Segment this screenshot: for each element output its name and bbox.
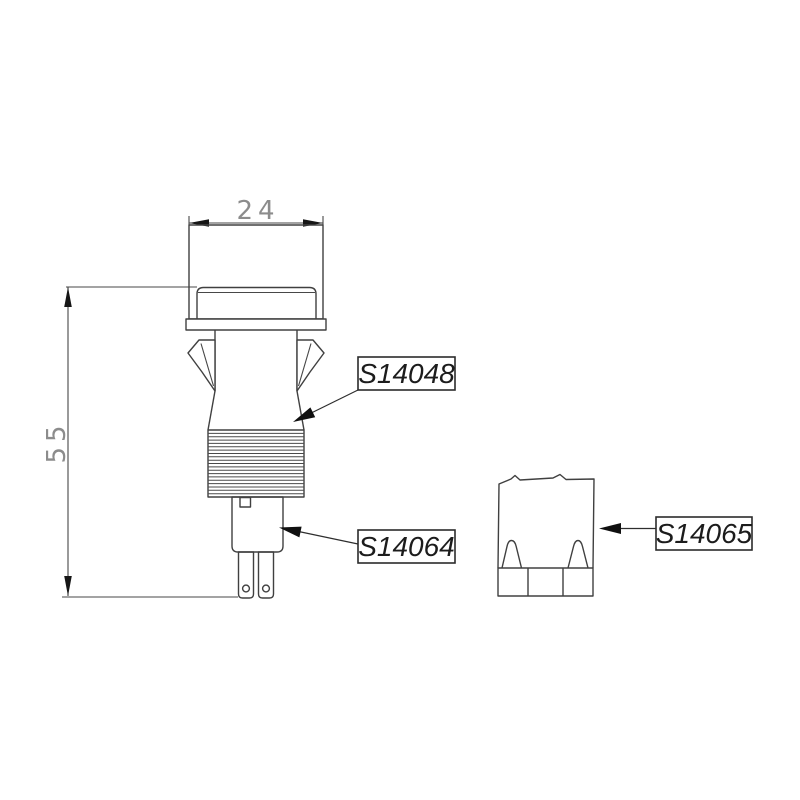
lens-cap-tab-right <box>568 541 588 569</box>
technical-drawing: 24 55 <box>0 0 800 800</box>
snap-clip-right <box>297 340 324 391</box>
dimension-width: 24 <box>189 196 323 227</box>
lens-cap-base-band <box>498 568 593 596</box>
callout-s14048: S14048 <box>293 357 455 422</box>
threaded-bushing <box>208 430 304 497</box>
pushbutton-front-view <box>186 225 326 598</box>
taper-left <box>208 391 215 430</box>
dimension-height-value: 55 <box>42 420 72 463</box>
callout-s14064: S14064 <box>279 527 455 563</box>
terminal-left-blade <box>239 552 254 598</box>
leader-arrow-s14065-icon <box>599 523 621 534</box>
button-cap-skirt <box>189 225 323 319</box>
leader-arrow-s14048-icon <box>293 407 315 422</box>
callout-s14065: S14065 <box>599 517 753 550</box>
lens-cap-tab-left <box>502 541 522 569</box>
bezel-flange <box>186 319 326 330</box>
drawing-page: 24 55 <box>0 0 800 800</box>
label-text-s14048: S14048 <box>358 358 455 389</box>
label-text-s14065: S14065 <box>656 518 753 549</box>
dimension-width-value: 24 <box>236 196 279 226</box>
taper-right <box>297 391 304 430</box>
dimension-arrow-top-icon <box>64 287 72 307</box>
dimension-arrow-bottom-icon <box>64 576 72 596</box>
switch-base-block <box>232 497 283 552</box>
base-key-notch <box>240 498 251 508</box>
snap-clip-left <box>188 340 215 391</box>
terminal-right-hole <box>263 585 270 592</box>
terminal-left <box>239 552 254 598</box>
lens-cap-side-view <box>498 475 594 597</box>
terminal-right <box>259 552 274 598</box>
lens-cap-outline <box>498 475 594 569</box>
terminal-left-hole <box>243 585 250 592</box>
terminal-right-blade <box>259 552 274 598</box>
label-text-s14064: S14064 <box>358 531 455 562</box>
